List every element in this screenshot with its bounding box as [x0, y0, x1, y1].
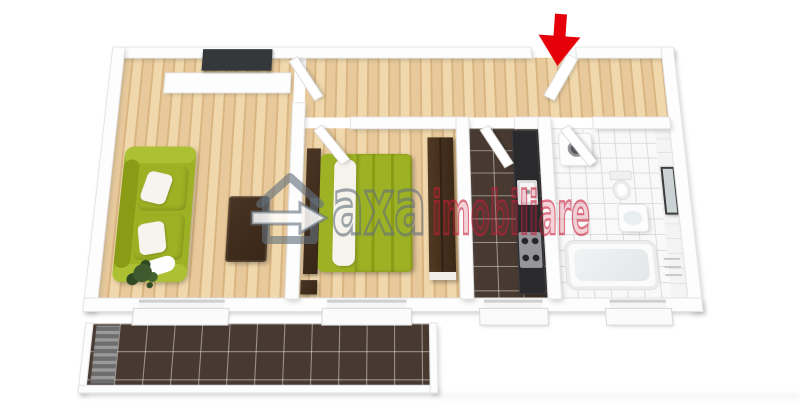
- ground-shadow: [440, 394, 800, 402]
- balcony-floor: [86, 324, 431, 386]
- bed-pillows: [332, 160, 356, 266]
- bathtub: [564, 240, 661, 290]
- wall-kitchen-top: [515, 117, 539, 128]
- kitchen-sink: [517, 180, 538, 205]
- tv-panel: [202, 49, 273, 70]
- wall-bedroom-top: [351, 117, 457, 128]
- window-sill: [606, 309, 673, 325]
- window-sill: [322, 309, 411, 325]
- wall-outer-top-right: [576, 47, 674, 57]
- faucet: [525, 190, 530, 195]
- hallway-floor: [304, 58, 669, 118]
- towel-rail: [663, 254, 682, 276]
- window-sill: [480, 309, 548, 325]
- bathroom-sink: [618, 205, 649, 231]
- bathtub-basin: [574, 249, 651, 281]
- double-bed: [317, 154, 412, 272]
- toilet-tank: [609, 171, 632, 180]
- bed-duvet: [355, 154, 413, 272]
- wardrobe-base: [429, 272, 456, 280]
- wardrobe-door-split: [439, 137, 444, 280]
- wardrobe: [427, 137, 456, 280]
- coffee-table: [225, 196, 269, 262]
- entrance-arrow-icon: [530, 12, 588, 74]
- sideboard: [164, 73, 290, 92]
- stove: [518, 232, 542, 268]
- wall-bathroom-top: [593, 117, 670, 128]
- plant-foliage: [132, 264, 152, 282]
- sink-basin: [622, 211, 643, 226]
- balcony-wall-bottom: [79, 386, 438, 393]
- sofa-pillow: [137, 220, 166, 256]
- apartment-plan: [73, 47, 713, 402]
- plant: [121, 256, 164, 292]
- wall-outer-top-left: [112, 47, 531, 57]
- balcony-wall-right: [430, 324, 437, 393]
- window-sill: [133, 309, 229, 325]
- nightstand: [300, 280, 317, 294]
- floorplan-render: axa imobiliare: [0, 0, 800, 404]
